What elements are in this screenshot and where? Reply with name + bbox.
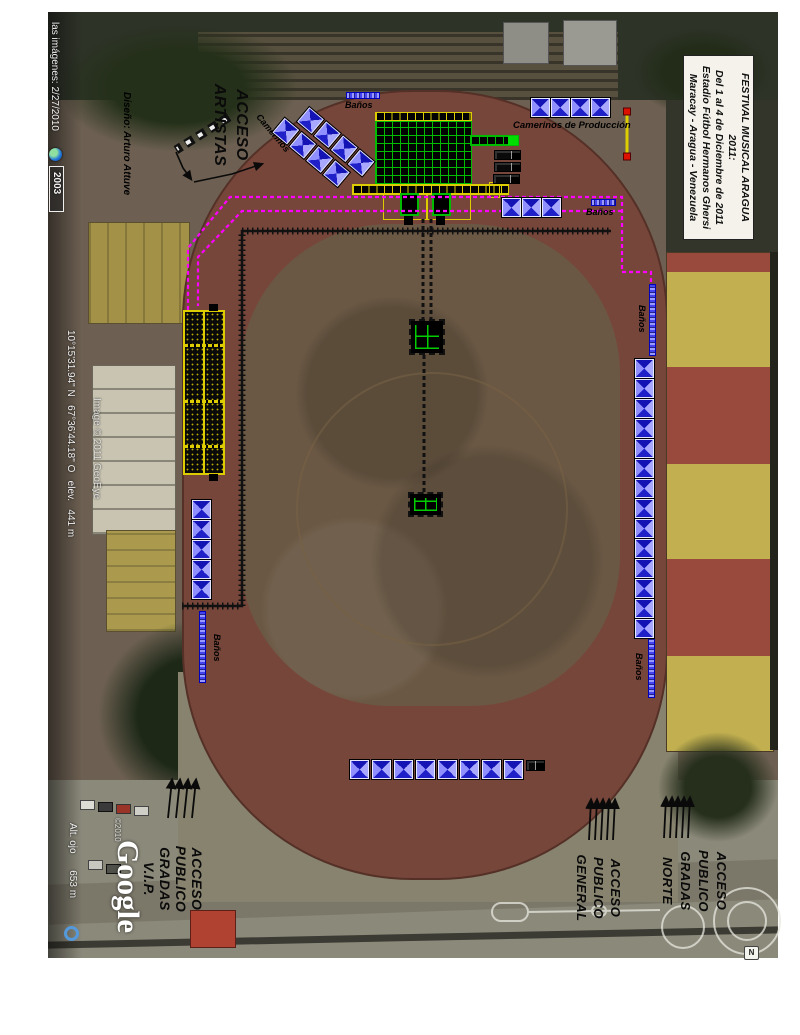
- tent-icon: [481, 759, 502, 780]
- vip-bleacher-centerline: [203, 312, 205, 473]
- tent-icon: [634, 538, 655, 559]
- banos-bar: [346, 92, 380, 99]
- tent-icon: [349, 759, 370, 780]
- loading-box-outline: [489, 182, 500, 198]
- north-roof-block: [563, 20, 617, 66]
- imagery-date-text: las imágenes: 2/27/2010: [49, 22, 60, 131]
- stage-stub: [436, 216, 445, 225]
- tent-icon: [501, 197, 522, 218]
- tent-icon: [634, 398, 655, 419]
- foh-tower: [411, 321, 443, 353]
- eye-altitude-text: Alt. ojo 653 m: [67, 823, 78, 898]
- tent-icon: [191, 559, 212, 580]
- bleacher-end-cap: [209, 304, 218, 311]
- tent-icon: [634, 498, 655, 519]
- grandstand-roof: [666, 252, 774, 752]
- stage-skirt-divider: [426, 195, 428, 220]
- event-title-box: FESTIVAL MUSICAL ARAGUA 2011: Del 1 al 4…: [683, 55, 754, 240]
- camerinos-produccion-label: Camerinos de Producción: [513, 120, 631, 131]
- delay-tower: [410, 494, 441, 515]
- parked-car: [80, 800, 95, 810]
- tent-icon: [634, 458, 655, 479]
- geoeye-watermark: Image © 2011 GeoEye: [91, 398, 102, 499]
- tent-icon: [634, 358, 655, 379]
- truck-icon: [493, 174, 520, 184]
- tent-icon: [590, 97, 611, 118]
- grandstand-edge: [770, 252, 778, 750]
- tent-icon: [634, 578, 655, 599]
- acceso-general-label: ACCESO PUBLICO GENERAL: [573, 842, 624, 934]
- tent-icon: [634, 558, 655, 579]
- tent-icon: [521, 197, 542, 218]
- tent-icon: [634, 618, 655, 639]
- vip-bleacher-divider: [184, 400, 224, 403]
- banos-bar: [648, 636, 655, 698]
- tent-icon: [634, 378, 655, 399]
- tent-icon: [415, 759, 436, 780]
- acceso-artistas-label: ACCESO ARTISTAS: [208, 76, 252, 174]
- tent-icon: [371, 759, 392, 780]
- tent-icon: [503, 759, 524, 780]
- parked-car: [88, 860, 103, 870]
- yellow-roof-building: [88, 222, 190, 324]
- banos-bar: [199, 611, 206, 683]
- tent-icon: [634, 438, 655, 459]
- google-copyright: ©2010: [113, 818, 122, 842]
- north-roof-block: [503, 22, 549, 64]
- tent-icon: [541, 197, 562, 218]
- banos-label: Baños: [634, 653, 644, 681]
- tent-icon: [191, 519, 212, 540]
- stage-bottom-row: [352, 184, 509, 195]
- google-logo: Google: [110, 840, 146, 933]
- tree-canopy: [58, 22, 298, 152]
- vip-bleacher-divider: [184, 445, 224, 448]
- tent-icon: [459, 759, 480, 780]
- white-apartment-building: [92, 365, 176, 535]
- truck-icon: [526, 760, 545, 771]
- parked-car: [116, 804, 131, 814]
- tent-icon: [530, 97, 551, 118]
- tent-icon: [191, 539, 212, 560]
- tent-icon: [550, 97, 571, 118]
- banos-label: Baños: [212, 634, 222, 662]
- tent-icon: [634, 598, 655, 619]
- tent-icon: [634, 478, 655, 499]
- parked-car: [134, 806, 149, 816]
- tent-icon: [191, 579, 212, 600]
- streaming-spinner-icon: [64, 926, 79, 941]
- banos-bar: [649, 284, 656, 356]
- stage-monitor-box: [400, 193, 419, 216]
- truck-icon: [494, 150, 521, 160]
- designer-credit: Diseño: Arturo Attuve: [121, 92, 132, 195]
- banos-label: Baños: [637, 305, 647, 333]
- vip-bleacher-divider: [184, 344, 224, 347]
- google-earth-screenshot: FESTIVAL MUSICAL ARAGUA 2011: Del 1 al 4…: [0, 0, 800, 1035]
- stage-arm-green-cell: [508, 136, 518, 145]
- stage-deck-grid: [375, 121, 472, 185]
- banos-bar: [591, 199, 616, 206]
- bleacher-end-cap: [209, 474, 218, 481]
- tree-canopy: [658, 732, 778, 842]
- tent-icon: [634, 418, 655, 439]
- acceso-norte-label: ACCESO PUBLICO GRADAS NORTE: [658, 838, 730, 924]
- north-badge: N: [744, 946, 759, 960]
- acceso-vip-label: ACCESO PUBLICO GRADAS V.I.P.: [141, 820, 205, 938]
- tent-icon: [437, 759, 458, 780]
- tent-icon: [570, 97, 591, 118]
- banos-label: Baños: [586, 207, 614, 217]
- tent-icon: [191, 499, 212, 520]
- stage-stub: [404, 216, 413, 225]
- coordinates-text: 10°15'31.94" N 67°36'44.18" O elev. 441 …: [65, 330, 76, 537]
- banos-label: Baños: [345, 100, 373, 110]
- truck-icon: [494, 162, 521, 172]
- parked-car: [98, 802, 113, 812]
- stage-monitor-box: [432, 193, 451, 216]
- time-slider-year[interactable]: 2003: [51, 172, 62, 194]
- yellow-roof-building: [106, 530, 176, 632]
- earth-globe-icon: [49, 148, 62, 161]
- tent-icon: [393, 759, 414, 780]
- tent-icon: [634, 518, 655, 539]
